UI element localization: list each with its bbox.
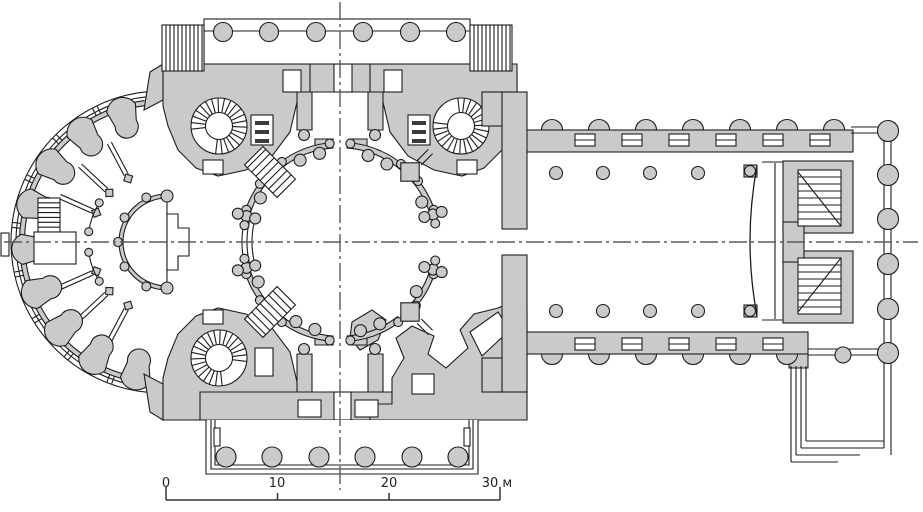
floor-plan-svg	[0, 0, 923, 512]
scale-label-30: 30 м	[482, 476, 512, 491]
scale-label-0: 0	[162, 476, 170, 491]
scale-label-10: 10	[269, 476, 286, 491]
floor-plan: 0 10 20 30 м	[0, 0, 923, 512]
scale-label-20: 20	[381, 476, 398, 491]
